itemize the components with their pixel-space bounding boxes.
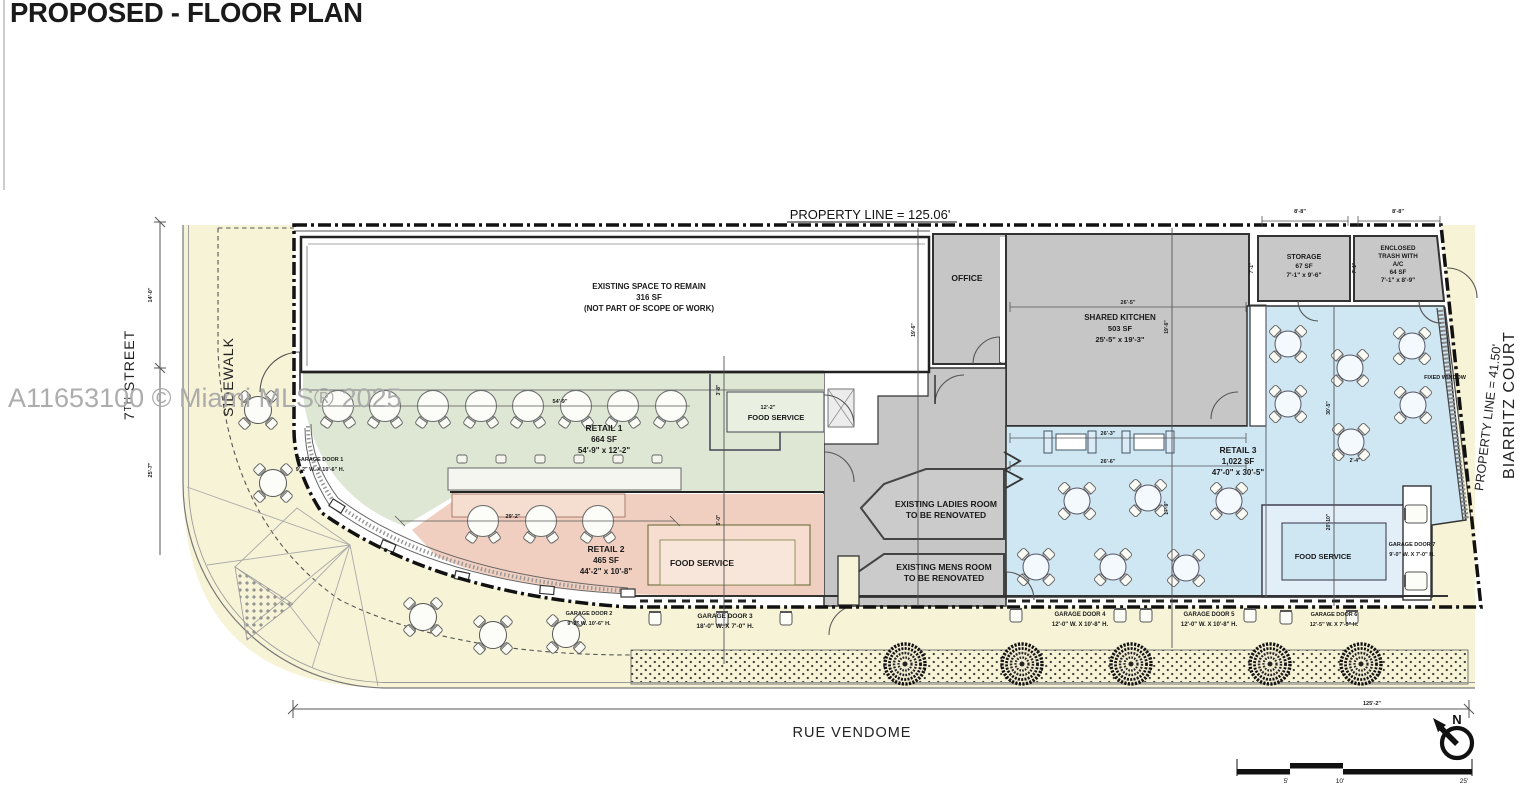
svg-text:ENCLOSED: ENCLOSED bbox=[1381, 245, 1416, 252]
svg-text:54'-9": 54'-9" bbox=[553, 399, 568, 405]
svg-text:25'-5" x 19'-3": 25'-5" x 19'-3" bbox=[1095, 335, 1144, 344]
svg-text:STORAGE: STORAGE bbox=[1287, 254, 1322, 261]
svg-text:1,022 SF: 1,022 SF bbox=[1222, 457, 1255, 466]
svg-text:30'-5": 30'-5" bbox=[1326, 401, 1332, 415]
svg-text:664 SF: 664 SF bbox=[591, 435, 617, 444]
svg-text:8'-8": 8'-8" bbox=[1294, 209, 1306, 215]
svg-text:TO BE RENOVATED: TO BE RENOVATED bbox=[906, 510, 986, 520]
svg-text:9'-2" W. 10'-6" H.: 9'-2" W. 10'-6" H. bbox=[567, 621, 611, 627]
svg-text:(NOT PART OF SCOPE OF WORK): (NOT PART OF SCOPE OF WORK) bbox=[584, 304, 714, 313]
svg-text:TRASH WITH: TRASH WITH bbox=[1378, 253, 1418, 260]
svg-text:25': 25' bbox=[1460, 778, 1468, 785]
svg-text:54'-9" x 12'-2": 54'-9" x 12'-2" bbox=[578, 446, 631, 455]
svg-text:BIARRITZ COURT: BIARRITZ COURT bbox=[1501, 331, 1518, 479]
svg-text:PROPOSED - FLOOR PLAN: PROPOSED - FLOOR PLAN bbox=[10, 0, 363, 28]
svg-text:5'-0": 5'-0" bbox=[716, 514, 722, 525]
svg-text:N: N bbox=[1452, 712, 1461, 727]
svg-text:RETAIL 1: RETAIL 1 bbox=[586, 423, 623, 433]
svg-text:9'-2" W. X 10'-6" H.: 9'-2" W. X 10'-6" H. bbox=[296, 467, 345, 473]
svg-text:RUE VENDOME: RUE VENDOME bbox=[793, 725, 912, 741]
svg-text:GARAGE DOOR 5: GARAGE DOOR 5 bbox=[1183, 612, 1235, 618]
svg-text:GARAGE DOOR 7: GARAGE DOOR 7 bbox=[1389, 542, 1436, 548]
svg-text:465 SF: 465 SF bbox=[593, 556, 619, 565]
svg-text:PROPERTY LINE = 125.06': PROPERTY LINE = 125.06' bbox=[790, 207, 951, 222]
svg-text:8'-8": 8'-8" bbox=[1392, 209, 1404, 215]
svg-text:FOOD SERVICE: FOOD SERVICE bbox=[1295, 552, 1352, 561]
svg-text:17'-9": 17'-9" bbox=[1164, 501, 1170, 515]
svg-text:3'-8": 3'-8" bbox=[716, 384, 722, 395]
svg-text:GARAGE DOOR 1: GARAGE DOOR 1 bbox=[297, 457, 344, 463]
svg-text:12'-0" W. X 10'-8" H.: 12'-0" W. X 10'-8" H. bbox=[1181, 622, 1238, 628]
svg-text:67 SF: 67 SF bbox=[1295, 263, 1312, 270]
svg-text:RETAIL 3: RETAIL 3 bbox=[1220, 445, 1257, 455]
svg-text:RETAIL 2: RETAIL 2 bbox=[588, 544, 625, 554]
svg-text:26'-6": 26'-6" bbox=[1101, 459, 1116, 465]
svg-text:44'-2" x 10'-8": 44'-2" x 10'-8" bbox=[580, 567, 633, 576]
svg-text:7'-1": 7'-1" bbox=[1352, 262, 1358, 273]
svg-text:14'-0": 14'-0" bbox=[148, 287, 154, 302]
svg-text:47'-0" x 30'-5": 47'-0" x 30'-5" bbox=[1212, 468, 1265, 477]
svg-text:EXISTING SPACE TO REMAIN: EXISTING SPACE TO REMAIN bbox=[592, 282, 706, 291]
svg-text:A11653100 © Miami MLS® 2025: A11653100 © Miami MLS® 2025 bbox=[8, 383, 402, 413]
svg-text:FOOD SERVICE: FOOD SERVICE bbox=[748, 413, 805, 422]
svg-text:125'-2": 125'-2" bbox=[1363, 701, 1381, 707]
svg-text:64 SF: 64 SF bbox=[1390, 269, 1407, 276]
svg-text:26'-5": 26'-5" bbox=[1121, 300, 1136, 306]
svg-text:20'-10": 20'-10" bbox=[1326, 513, 1332, 530]
svg-text:TO BE RENOVATED: TO BE RENOVATED bbox=[904, 573, 984, 583]
svg-text:19'-6": 19'-6" bbox=[911, 323, 917, 337]
svg-text:GARAGE DOOR 2: GARAGE DOOR 2 bbox=[566, 611, 613, 617]
svg-text:12'-5" W. X 7'-0" H.: 12'-5" W. X 7'-0" H. bbox=[1310, 622, 1359, 628]
svg-text:GARAGE DOOR 6: GARAGE DOOR 6 bbox=[1311, 612, 1358, 618]
svg-text:12'-2": 12'-2" bbox=[761, 405, 776, 411]
svg-text:503 SF: 503 SF bbox=[1108, 324, 1133, 333]
svg-text:GARAGE DOOR 4: GARAGE DOOR 4 bbox=[1054, 612, 1106, 618]
svg-text:29'-2": 29'-2" bbox=[506, 514, 521, 520]
svg-text:25'-7": 25'-7" bbox=[148, 462, 154, 477]
svg-text:7'-1" x 9'-6": 7'-1" x 9'-6" bbox=[1286, 272, 1321, 279]
svg-text:5': 5' bbox=[1284, 778, 1289, 785]
svg-text:EXISTING MENS ROOM: EXISTING MENS ROOM bbox=[896, 562, 991, 572]
svg-text:26'-3": 26'-3" bbox=[1101, 431, 1116, 437]
svg-text:7'-1" x 8'-9": 7'-1" x 8'-9" bbox=[1381, 277, 1415, 284]
svg-text:18'-0" W. X 7'-0" H.: 18'-0" W. X 7'-0" H. bbox=[696, 623, 753, 630]
svg-text:EXISTING LADIES ROOM: EXISTING LADIES ROOM bbox=[895, 499, 997, 509]
svg-text:7'-1": 7'-1" bbox=[1249, 262, 1255, 273]
svg-text:A/C: A/C bbox=[1393, 261, 1404, 268]
svg-text:10': 10' bbox=[1336, 778, 1344, 785]
svg-text:OFFICE: OFFICE bbox=[951, 273, 982, 283]
svg-text:12'-0" W. X 10'-8" H.: 12'-0" W. X 10'-8" H. bbox=[1052, 622, 1109, 628]
svg-text:2'-4": 2'-4" bbox=[1350, 458, 1361, 464]
svg-text:GARAGE DOOR 3: GARAGE DOOR 3 bbox=[697, 613, 753, 620]
svg-text:FIXED WINDOW: FIXED WINDOW bbox=[1424, 375, 1467, 381]
svg-text:SHARED KITCHEN: SHARED KITCHEN bbox=[1084, 313, 1156, 322]
svg-text:19'-6": 19'-6" bbox=[1164, 320, 1170, 334]
svg-text:316 SF: 316 SF bbox=[636, 293, 662, 302]
svg-text:9'-0" W. X 7'-0" H.: 9'-0" W. X 7'-0" H. bbox=[1389, 552, 1435, 558]
svg-text:FOOD SERVICE: FOOD SERVICE bbox=[670, 558, 734, 568]
